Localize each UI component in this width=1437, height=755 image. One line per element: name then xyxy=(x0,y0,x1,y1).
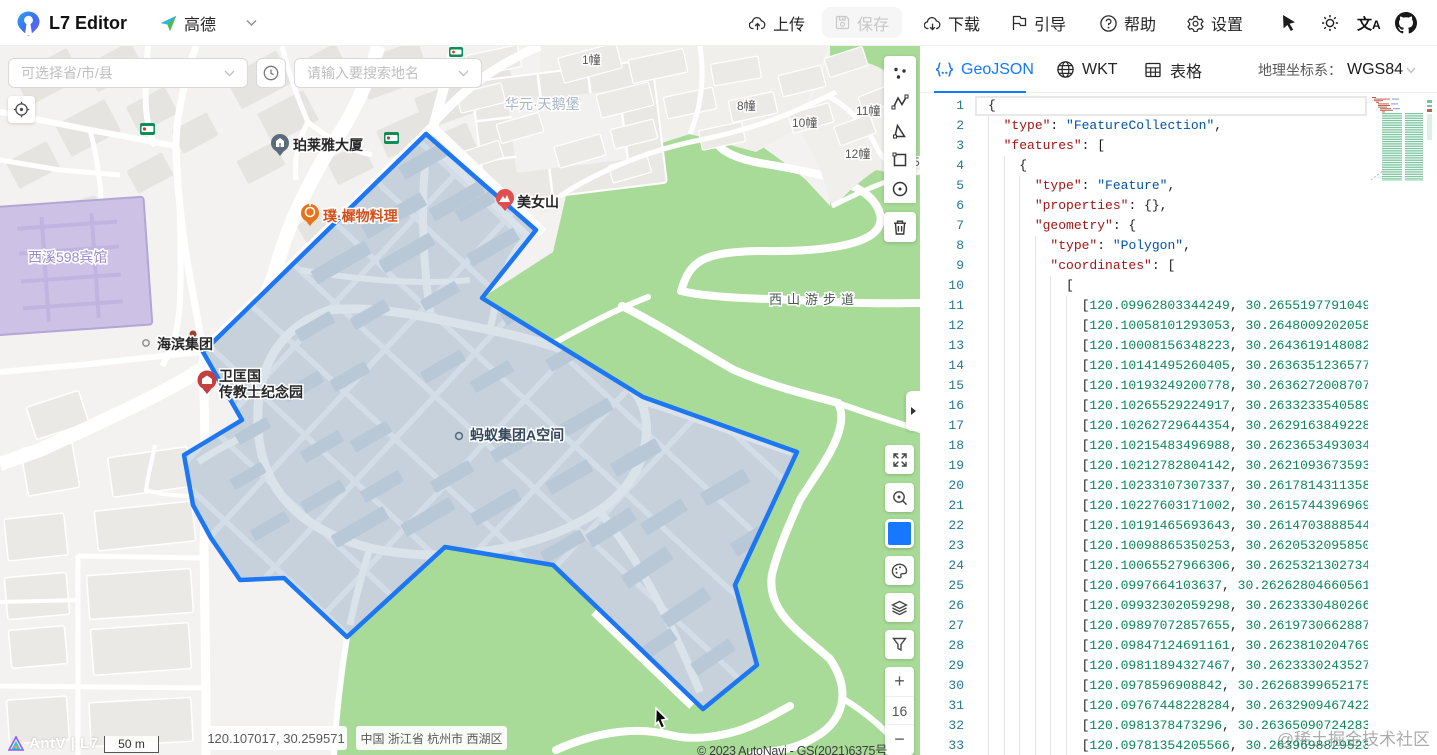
svg-text:华元·天鹅堡: 华元·天鹅堡 xyxy=(505,96,580,112)
svg-text:蚂蚁集团A空间: 蚂蚁集团A空间 xyxy=(470,427,564,443)
svg-text:西山游步道: 西山游步道 xyxy=(769,292,859,307)
svg-text:11幢: 11幢 xyxy=(856,103,880,118)
svg-text:12幢: 12幢 xyxy=(845,146,870,161)
svg-text:西溪598宾馆: 西溪598宾馆 xyxy=(28,249,107,265)
svg-text:8幢: 8幢 xyxy=(737,98,756,113)
svg-text:1幢: 1幢 xyxy=(582,52,601,67)
svg-text:美女山: 美女山 xyxy=(517,194,559,210)
svg-text:璞·樨物料理: 璞·樨物料理 xyxy=(323,208,398,224)
svg-text:珀莱雅大厦: 珀莱雅大厦 xyxy=(293,137,364,153)
svg-text:海滨集团: 海滨集团 xyxy=(157,336,213,352)
svg-text:10幢: 10幢 xyxy=(792,115,817,130)
svg-text:传教士纪念园: 传教士纪念园 xyxy=(218,384,303,400)
svg-text:卫匡国: 卫匡国 xyxy=(219,368,261,384)
